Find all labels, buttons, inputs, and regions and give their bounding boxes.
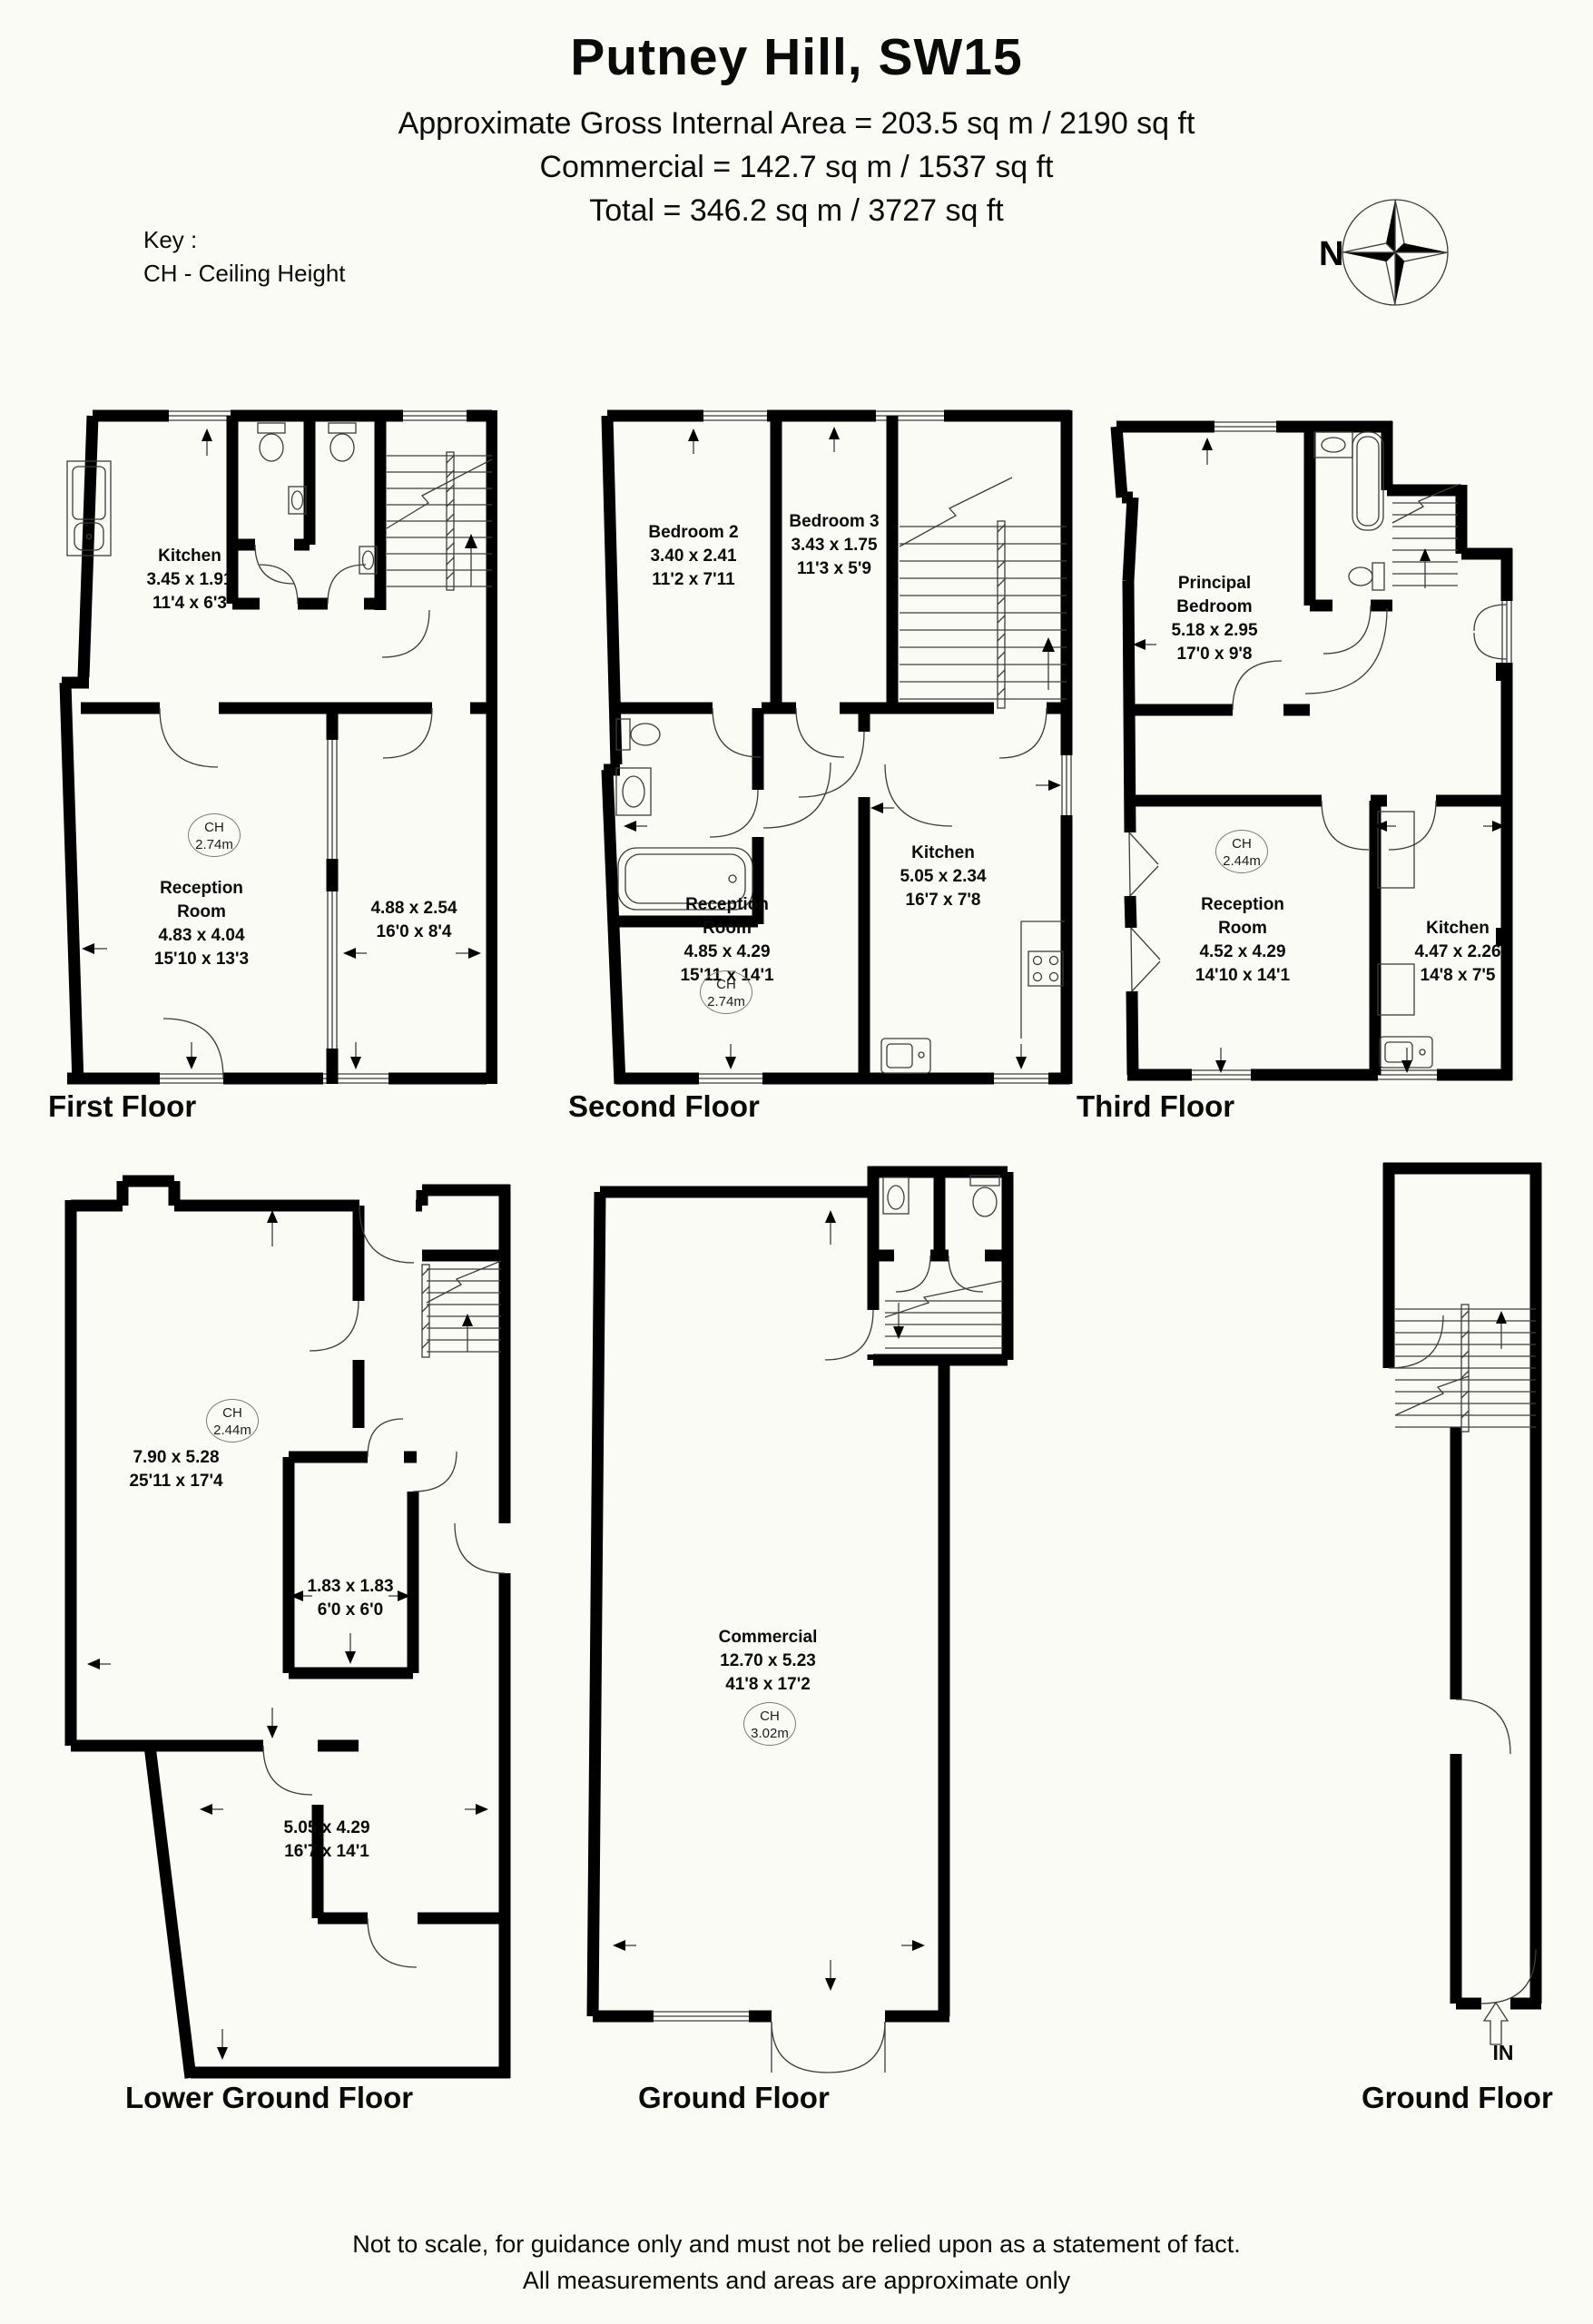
ground-commercial-label: Commercial 12.70 x 5.23 41'8 x 17'2 [719,1626,818,1697]
sink-icon [883,1177,909,1214]
dimension-arrows [82,428,481,1069]
stairs-icon [1395,1305,1536,1432]
lower-ground-floor: 7.90 x 5.28 25'11 x 17'4 1.83 x 1.83 6'0… [54,1165,513,2082]
ceiling-height-badge: CH 2.74m [188,813,241,857]
key-item-ceiling-height: CH - Ceiling Height [143,257,346,290]
ground-floor: Commercial 12.70 x 5.23 41'8 x 17'2 CH 3… [585,1165,1076,2145]
sink-icon [616,768,651,815]
ceiling-height-badge: CH 2.74m [700,970,752,1014]
second-kitchen-label: Kitchen 5.05 x 2.34 16'7 x 7'8 [900,842,986,912]
ground-floor-entrance [1354,1155,1563,2081]
ceiling-height-badge: CH 2.44m [206,1399,259,1443]
first-reception-label: Reception Room 4.83 x 4.04 15'10 x 13'3 [143,877,261,971]
lower-ground-floor-plan [54,1165,513,2082]
stairs-icon [387,452,492,590]
stairs-icon [900,478,1067,708]
first-kitchen-label: Kitchen 3.45 x 1.91 11'4 x 6'3 [146,545,232,615]
ceiling-height-badge: CH 2.44m [1215,830,1268,873]
ground-floor-entrance-plan [1354,1155,1563,2081]
first-rear-room-label: 4.88 x 2.54 16'0 x 8'4 [370,897,457,944]
disclaimer: Not to scale, for guidance only and must… [0,2226,1593,2299]
entry-in-label: IN [1483,2041,1523,2065]
toilet-icon [329,423,356,461]
door-arcs [160,545,432,1078]
toilet-icon [258,423,285,461]
second-bedroom3-label: Bedroom 3 3.43 x 1.75 11'3 x 5'9 [789,510,879,581]
floorplan-page: Putney Hill, SW15 Approximate Gross Inte… [0,0,1593,2324]
door-arcs [825,1256,983,1360]
ceiling-height-badge: CH 3.02m [743,1702,796,1746]
lower-front-room-label: 7.90 x 5.28 25'11 x 17'4 [129,1446,222,1493]
lower-rear-room-label: 5.05 x 4.29 16'7 x 14'1 [283,1817,369,1864]
third-principal-bedroom-label: Principal Bedroom 5.18 x 2.95 17'0 x 9'8 [1165,572,1264,666]
ground-floor-plan [585,1165,1076,2145]
sink-icon [881,1039,930,1073]
disclaimer-line1: Not to scale, for guidance only and must… [0,2226,1593,2262]
double-door-icon [772,2022,885,2073]
compass-icon: N [1312,180,1457,325]
first-floor-plan [51,409,497,1085]
dimension-arrows [613,1210,925,1991]
first-floor: Kitchen 3.45 x 1.91 11'4 x 6'3 Reception… [51,409,497,1085]
third-floor-title: Third Floor [1077,1089,1234,1124]
third-floor: Principal Bedroom 5.18 x 2.95 17'0 x 9'8… [1106,419,1519,1082]
ground-floor-title: Ground Floor [638,2081,830,2115]
stove-icon [1028,951,1063,986]
stairs-icon [1392,485,1458,588]
sink-icon [1314,432,1352,458]
lower-store-label: 1.83 x 1.83 6'0 x 6'0 [307,1575,393,1622]
second-floor: Bedroom 2 3.40 x 2.41 11'2 x 7'11 Bedroo… [595,409,1076,1085]
counter-line [1021,921,1065,1039]
bath-icon [1352,432,1383,530]
ground-floor-entrance-title: Ground Floor [1362,2081,1553,2115]
entry-arrow-icon [1484,2003,1508,2044]
key-block: Key : CH - Ceiling Height [143,223,346,290]
counter-line [1378,812,1414,1015]
toilet-icon [970,1176,999,1216]
toilet-icon [616,719,660,750]
gross-internal-area: Approximate Gross Internal Area = 203.5 … [0,102,1593,145]
sink-icon [359,547,377,574]
key-heading: Key : [143,223,346,257]
sink-icon [289,487,306,514]
second-floor-title: Second Floor [568,1089,760,1124]
disclaimer-line2: All measurements and areas are approxima… [0,2262,1593,2299]
second-bedroom2-label: Bedroom 2 3.40 x 2.41 11'2 x 7'11 [648,521,738,592]
first-floor-title: First Floor [48,1089,196,1124]
lower-ground-floor-title: Lower Ground Floor [125,2081,413,2115]
door-arcs [1389,1315,1536,2004]
page-title: Putney Hill, SW15 [0,27,1593,87]
toilet-icon [1349,563,1384,590]
compass-rose: N [1312,180,1457,330]
stairs-icon [422,1261,501,1357]
third-kitchen-label: Kitchen 4.47 x 2.26 14'8 x 7'5 [1414,917,1500,988]
compass-north-label: N [1319,235,1343,273]
third-reception-label: Reception Room 4.52 x 4.29 14'10 x 14'1 [1184,893,1302,988]
